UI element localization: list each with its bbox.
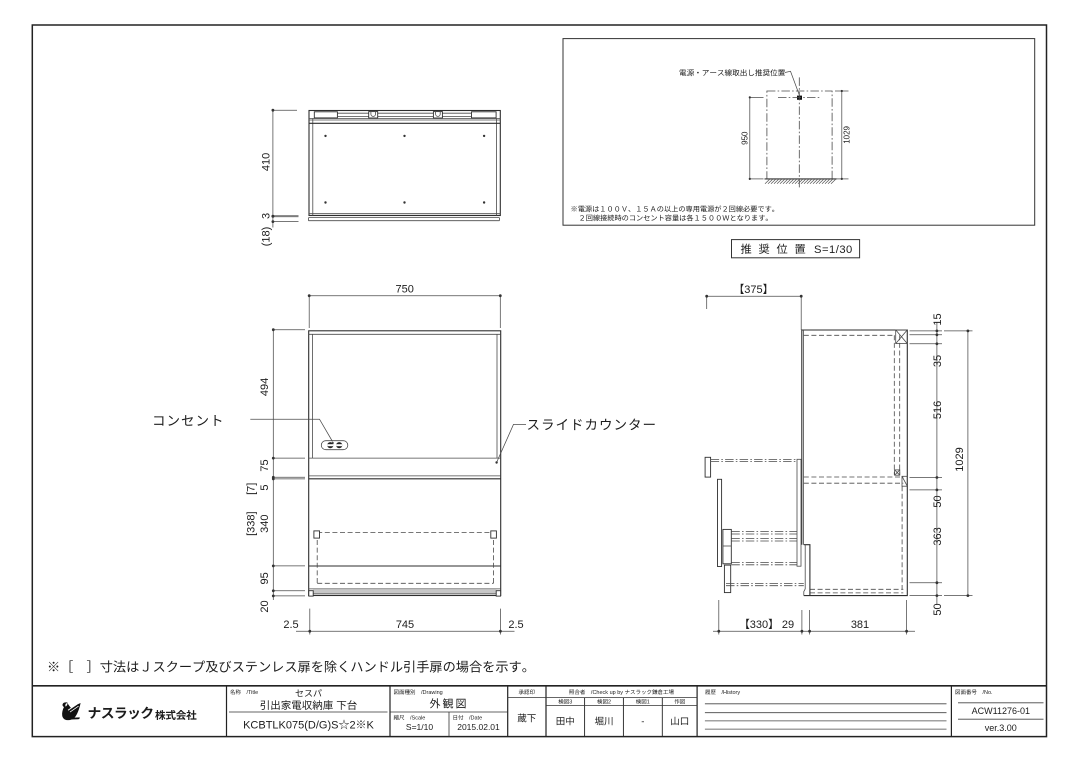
svg-text:ナスラック: ナスラック — [88, 706, 154, 721]
svg-text:2.5: 2.5 — [508, 619, 523, 631]
svg-text:※［ ］寸法はＪスクープ及びステンレス扉を除くハンドル引手扉: ※［ ］寸法はＪスクープ及びステンレス扉を除くハンドル引手扉の場合を示す。 — [47, 660, 535, 675]
svg-text:381: 381 — [851, 619, 869, 631]
svg-text:2015.02.01: 2015.02.01 — [457, 722, 500, 732]
svg-text:15: 15 — [932, 313, 944, 325]
svg-text:2.5: 2.5 — [283, 619, 298, 631]
svg-text:検図1: 検図1 — [636, 699, 650, 706]
svg-text:494: 494 — [259, 378, 271, 396]
svg-text:図面種別 /Drawing: 図面種別 /Drawing — [394, 689, 443, 696]
svg-text:株式会社: 株式会社 — [155, 710, 197, 722]
svg-text:75: 75 — [259, 459, 271, 471]
svg-text:410: 410 — [261, 153, 273, 171]
svg-text:(18): (18) — [261, 227, 273, 247]
svg-text:1029: 1029 — [954, 447, 966, 471]
svg-text:【330】: 【330】 — [739, 618, 779, 631]
svg-text:堀川: 堀川 — [594, 717, 613, 728]
svg-text:95: 95 — [259, 572, 271, 584]
svg-text:745: 745 — [396, 619, 414, 631]
svg-text:5: 5 — [259, 484, 271, 490]
svg-text:電源・アース線取出し推奨位置: 電源・アース線取出し推奨位置 — [679, 68, 786, 77]
svg-text:履歴 /History: 履歴 /History — [705, 689, 740, 696]
svg-text:検図3: 検図3 — [558, 699, 572, 706]
svg-text:縮尺 /Scale: 縮尺 /Scale — [394, 715, 426, 722]
svg-text:日付 /Date: 日付 /Date — [453, 715, 483, 722]
svg-text:山口: 山口 — [670, 717, 689, 728]
svg-text:340: 340 — [259, 515, 271, 533]
svg-text:セスパ: セスパ — [295, 689, 322, 699]
svg-text:コンセント: コンセント — [152, 414, 225, 429]
svg-text:図面番号 /No.: 図面番号 /No. — [955, 689, 993, 696]
svg-text:ver.3.00: ver.3.00 — [985, 723, 1017, 733]
svg-text:蔵下: 蔵下 — [517, 714, 536, 725]
svg-text:3: 3 — [261, 213, 273, 219]
svg-text:750: 750 — [396, 284, 414, 296]
svg-text:※電源は１００Ｖ、１５Ａの以上の専用電源が２回線必要です。: ※電源は１００Ｖ、１５Ａの以上の専用電源が２回線必要です。 — [571, 205, 779, 214]
svg-text:田中: 田中 — [556, 717, 575, 728]
svg-text:ACW11276-01: ACW11276-01 — [972, 706, 1030, 716]
svg-text:20: 20 — [259, 600, 271, 612]
svg-text:S=1/10: S=1/10 — [406, 722, 433, 732]
svg-text:29: 29 — [782, 619, 794, 631]
svg-text:推奨位置S=1/30: 推奨位置S=1/30 — [741, 243, 853, 256]
svg-text:[7]: [7] — [246, 483, 258, 495]
svg-text:【375】: 【375】 — [733, 283, 773, 296]
svg-text:検図2: 検図2 — [597, 699, 611, 706]
svg-text:２回線接続時のコンセント容量は各１５００Ｗとなります。: ２回線接続時のコンセント容量は各１５００Ｗとなります。 — [579, 214, 773, 223]
svg-text:50: 50 — [932, 603, 944, 615]
svg-text:950: 950 — [741, 131, 750, 145]
svg-text:KCBTLK075(D/G)S☆2※K: KCBTLK075(D/G)S☆2※K — [243, 719, 374, 732]
svg-text:[338]: [338] — [246, 511, 258, 535]
svg-text:35: 35 — [932, 355, 944, 367]
svg-text:363: 363 — [932, 527, 944, 545]
svg-text:作図: 作図 — [674, 699, 686, 706]
svg-text:516: 516 — [932, 401, 944, 419]
svg-text:照合者 /Check up by ナスラック鎌倉工場: 照合者 /Check up by ナスラック鎌倉工場 — [569, 689, 675, 696]
svg-text:スライドカウンター: スライドカウンター — [527, 418, 658, 433]
svg-text:引出家電収納庫 下台: 引出家電収納庫 下台 — [260, 700, 358, 712]
svg-text:-: - — [641, 717, 644, 728]
svg-text:承認印: 承認印 — [519, 689, 536, 696]
svg-text:1029: 1029 — [843, 125, 852, 143]
svg-text:50: 50 — [932, 495, 944, 507]
svg-text:外観図: 外観図 — [430, 698, 469, 711]
svg-text:名称 /Title: 名称 /Title — [230, 689, 258, 696]
